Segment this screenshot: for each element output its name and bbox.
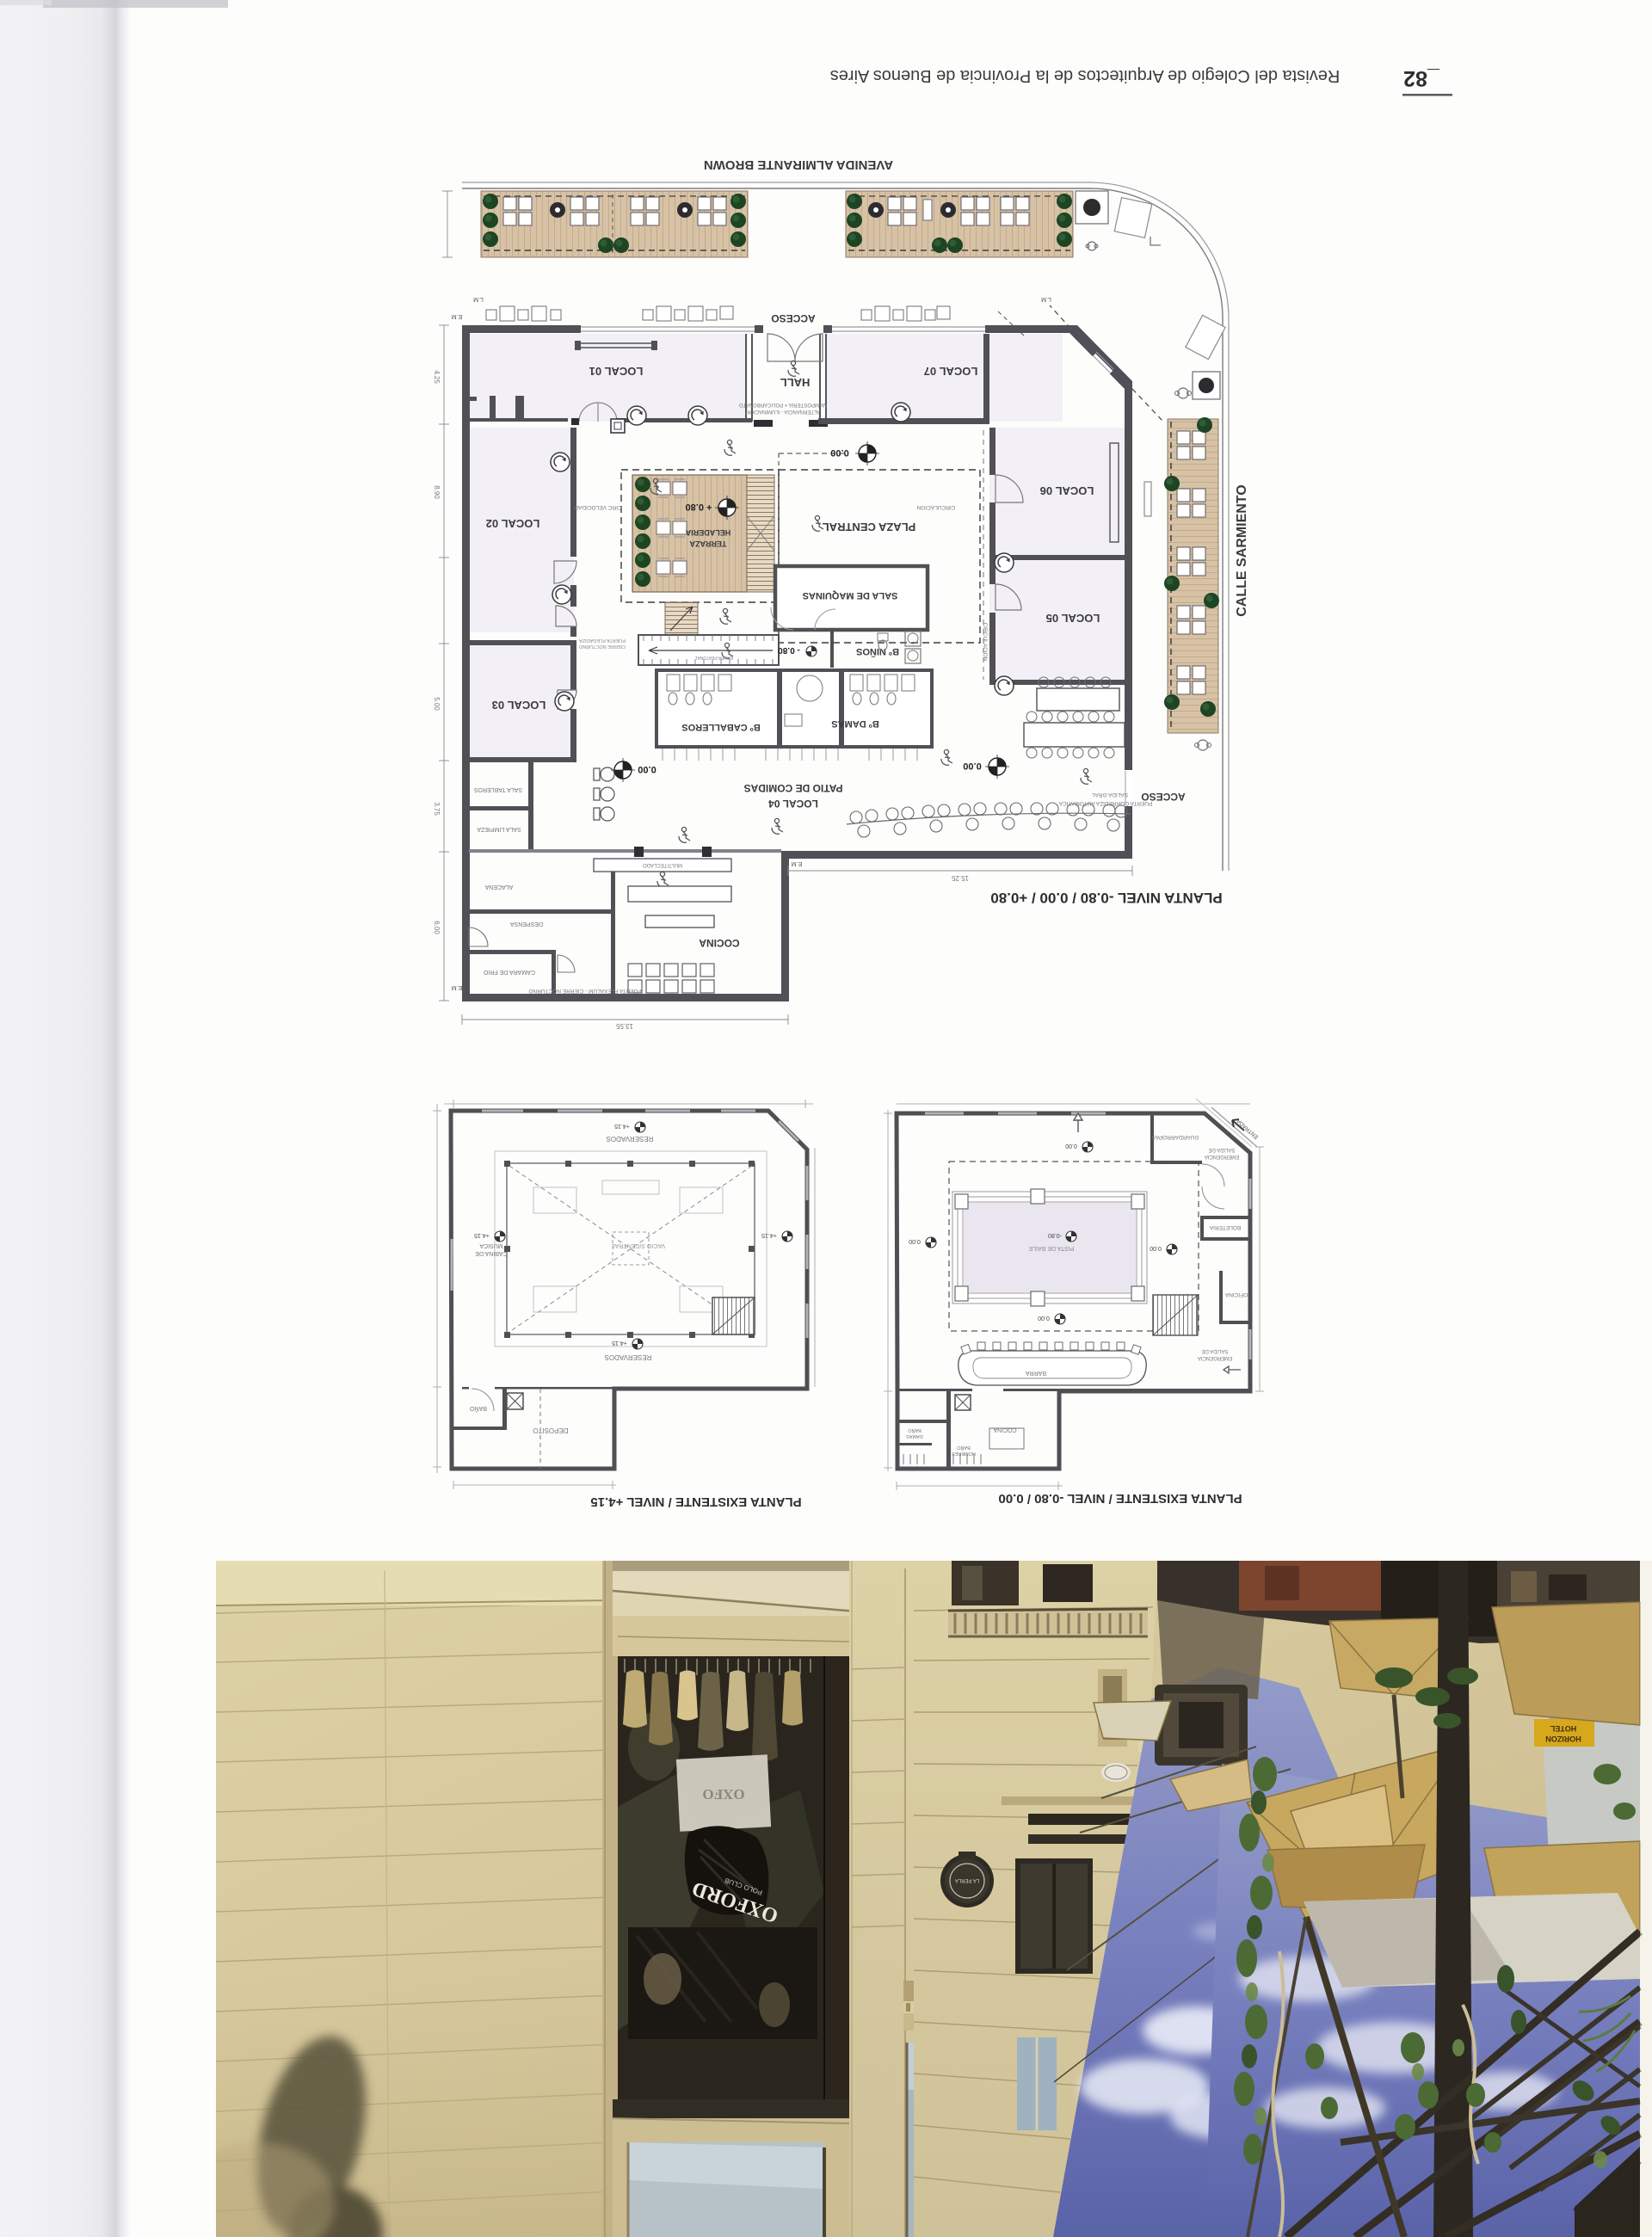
svg-text:E.M: E.M — [452, 984, 463, 990]
svg-text:LOCAL 07: LOCAL 07 — [924, 365, 978, 378]
svg-text:CABINA DE: CABINA DE — [475, 1250, 508, 1256]
svg-text:+4.15: +4.15 — [474, 1232, 490, 1238]
svg-text:L.M: L.M — [473, 296, 484, 302]
svg-text:BAÑO: BAÑO — [470, 1405, 487, 1413]
svg-text:PUERTA PLEGADIZA: PUERTA PLEGADIZA — [579, 638, 626, 643]
svg-text:- 0.80: - 0.80 — [778, 645, 800, 655]
svg-text:CALLE SARMIENTO: CALLE SARMIENTO — [1235, 484, 1249, 616]
svg-text:Bº NIÑOS: Bº NIÑOS — [856, 646, 899, 657]
svg-text:COCINA: COCINA — [699, 937, 740, 949]
svg-text:RESERVADOS: RESERVADOS — [605, 1353, 652, 1361]
svg-text:CIRC VELOCIDAD: CIRC VELOCIDAD — [574, 504, 622, 510]
svg-text:CIERRE NOCTURNO: CIERRE NOCTURNO — [578, 644, 626, 649]
svg-text:0.00: 0.00 — [638, 764, 656, 774]
svg-text:PUERTA FLEXALUM - CIERRE NOCTU: PUERTA FLEXALUM - CIERRE NOCTURNO — [528, 988, 641, 994]
svg-text:5.00: 5.00 — [433, 697, 441, 711]
svg-text:MUSICA: MUSICA — [479, 1242, 503, 1248]
svg-text:6.00: 6.00 — [433, 921, 441, 934]
svg-text:13.55: 13.55 — [615, 1022, 633, 1030]
svg-text:ACCESO: ACCESO — [771, 312, 815, 324]
svg-text:PLAZA CENTRAL: PLAZA CENTRAL — [823, 521, 916, 533]
svg-text:RAMPA PEATONAL: RAMPA PEATONAL — [694, 655, 733, 660]
svg-text:LOCAL 02: LOCAL 02 — [486, 517, 540, 530]
svg-text:LOCAL 06: LOCAL 06 — [1040, 484, 1094, 497]
svg-text:BARRA: BARRA — [1026, 1370, 1046, 1376]
svg-text:SALIDA DE: SALIDA DE — [1208, 1147, 1235, 1152]
svg-text:0.00: 0.00 — [1038, 1315, 1050, 1321]
svg-text:HALL: HALL — [780, 376, 811, 389]
svg-text:OXFO: OXFO — [702, 1786, 744, 1803]
svg-text:SALIDA DE: SALIDA DE — [1201, 1348, 1228, 1353]
svg-text:PLANTA EXISTENTE / NIVEL -0.80: PLANTA EXISTENTE / NIVEL -0.80 / 0.00 — [998, 1491, 1242, 1506]
svg-text:0.00: 0.00 — [909, 1238, 921, 1244]
svg-text:8.90: 8.90 — [433, 485, 441, 499]
svg-text:PLANTA EXISTENTE / NIVEL +4.15: PLANTA EXISTENTE / NIVEL +4.15 — [590, 1494, 801, 1509]
svg-text:PATIO DE COMIDAS: PATIO DE COMIDAS — [744, 782, 843, 794]
svg-text:4.25: 4.25 — [433, 370, 441, 384]
svg-text:_82: _82 — [1403, 66, 1440, 90]
svg-text:SALA DE MAQUINAS: SALA DE MAQUINAS — [803, 590, 898, 601]
svg-text:DESPENSA: DESPENSA — [510, 921, 543, 927]
svg-text:+4.15: +4.15 — [761, 1232, 777, 1238]
svg-text:EMERGENCIA: EMERGENCIA — [1205, 1154, 1239, 1159]
svg-text:EMERGENCIA: EMERGENCIA — [1198, 1355, 1232, 1360]
svg-text:-0.80: -0.80 — [1048, 1232, 1062, 1238]
svg-text:SALIDA GRAL: SALIDA GRAL — [1091, 792, 1128, 798]
svg-text:0.00: 0.00 — [963, 761, 981, 771]
svg-text:E.M: E.M — [792, 860, 803, 866]
svg-text:HELADERIA: HELADERIA — [685, 528, 730, 537]
svg-text:LOCAL 03: LOCAL 03 — [492, 699, 546, 712]
svg-text:BAÑO: BAÑO — [907, 1427, 921, 1433]
svg-text:LOCAL 04: LOCAL 04 — [768, 798, 818, 810]
svg-text:CIRCULACION: CIRCULACION — [982, 623, 988, 662]
svg-text:LOCAL 01: LOCAL 01 — [589, 365, 644, 378]
svg-text:PLANTA NIVEL -0.80 / 0.00 / +0: PLANTA NIVEL -0.80 / 0.00 / +0.80 — [990, 890, 1222, 906]
svg-text:BAÑO: BAÑO — [956, 1445, 970, 1451]
svg-text:Bº DAMAS: Bº DAMAS — [831, 718, 878, 729]
svg-text:Revista del Colegio de Arquite: Revista del Colegio de Arquitectos de la… — [830, 66, 1341, 85]
svg-text:Bº CABALLEROS: Bº CABALLEROS — [681, 722, 760, 732]
svg-text:PUERTA CORREDIZA AUTOMATICA: PUERTA CORREDIZA AUTOMATICA — [1058, 800, 1152, 806]
svg-text:MULTITECLADO: MULTITECLADO — [643, 862, 682, 867]
svg-text:3.75: 3.75 — [433, 802, 441, 816]
svg-text:AVENIDA ALMIRANTE BROWN: AVENIDA ALMIRANTE BROWN — [704, 157, 893, 172]
svg-text:OFICINA: OFICINA — [1224, 1291, 1248, 1297]
svg-text:LA PERLA: LA PERLA — [955, 1877, 979, 1883]
svg-text:E.M: E.M — [452, 313, 463, 319]
svg-text:SALA TABLEROS: SALA TABLEROS — [474, 786, 522, 792]
svg-text:LOCAL 05: LOCAL 05 — [1046, 612, 1100, 625]
svg-text:0.00: 0.00 — [830, 447, 848, 458]
svg-text:+4.15: +4.15 — [612, 1340, 627, 1346]
svg-text:ALACENA: ALACENA — [484, 884, 513, 890]
svg-text:+4.15: +4.15 — [614, 1123, 630, 1129]
svg-text:CAMARA DE FRIO: CAMARA DE FRIO — [484, 969, 535, 975]
svg-text:RESERVADOS: RESERVADOS — [607, 1135, 654, 1143]
svg-text:+ 0.80: + 0.80 — [686, 502, 712, 512]
svg-text:COCINA: COCINA — [993, 1427, 1017, 1433]
svg-text:DAMAS: DAMAS — [906, 1433, 923, 1439]
svg-text:L.M: L.M — [1041, 296, 1051, 302]
svg-text:15.25: 15.25 — [951, 874, 969, 882]
svg-text:HORIZON: HORIZON — [1545, 1735, 1581, 1743]
svg-text:SALA LIMPIEZA: SALA LIMPIEZA — [477, 826, 521, 832]
svg-text:ALTERNANCIA - ILUMINACION: ALTERNANCIA - ILUMINACION — [746, 409, 820, 414]
svg-text:CIRCULACION: CIRCULACION — [916, 504, 955, 510]
svg-text:DEPOSITO: DEPOSITO — [533, 1427, 568, 1434]
svg-text:0.00: 0.00 — [1065, 1143, 1077, 1149]
svg-text:GUARDARROPAS: GUARDARROPAS — [1151, 1134, 1199, 1140]
svg-text:TERRAZA: TERRAZA — [689, 539, 726, 548]
svg-text:PISTA DE BAILE: PISTA DE BAILE — [1028, 1245, 1074, 1251]
svg-text:HOTEL: HOTEL — [1550, 1724, 1576, 1733]
svg-text:BOLETERIA: BOLETERIA — [1209, 1224, 1241, 1230]
svg-text:VACIO S/CENTRAL: VACIO S/CENTRAL — [612, 1242, 666, 1248]
svg-text:0.00: 0.00 — [1150, 1245, 1162, 1251]
svg-text:MAMPOSTERIA + POLICARBONATO: MAMPOSTERIA + POLICARBONATO — [739, 402, 827, 407]
svg-text:HOMBRES: HOMBRES — [952, 1451, 976, 1456]
